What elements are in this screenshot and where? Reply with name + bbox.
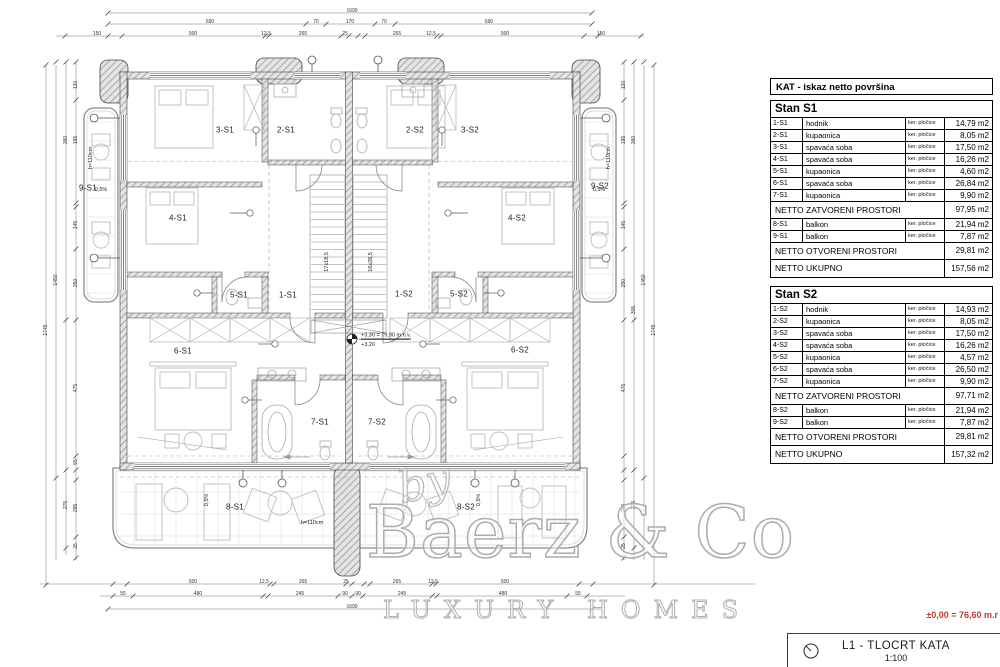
table-row: 3-S1spavaća sobaker. pločice17,50 m2 xyxy=(771,141,992,153)
apartment-name: Stan S2 xyxy=(771,287,992,303)
subtotal-area: 29,81 m2 xyxy=(944,243,992,259)
room-code-cell: 3-S2 xyxy=(771,328,802,339)
subtotal-row: NETTO ZATVORENI PROSTORI97,71 m2 xyxy=(771,387,992,404)
area-tables: Stan S11-S1hodnikker. pločice14,79 m22-S… xyxy=(770,100,993,464)
level-marker-icon xyxy=(347,334,409,344)
area-cell: 26,50 m2 xyxy=(944,364,992,375)
room-code-cell: 2-S2 xyxy=(771,316,802,327)
table-row: 1-S1hodnikker. pločice14,79 m2 xyxy=(771,117,992,129)
area-cell: 14,93 m2 xyxy=(944,304,992,315)
apartment-name: Stan S1 xyxy=(771,101,992,117)
finish-cell: ker. pločice xyxy=(905,190,944,201)
area-cell: 26,84 m2 xyxy=(944,178,992,189)
finish-cell: ker. pločice xyxy=(905,417,944,428)
area-cell: 14,79 m2 xyxy=(944,118,992,129)
table-row: 7-S2kupaonicaker. pločice9,90 m2 xyxy=(771,375,992,387)
room-name-cell: spavaća soba xyxy=(802,340,905,351)
room-code-cell: 3-S1 xyxy=(771,142,802,153)
room-code-cell: 1-S1 xyxy=(771,118,802,129)
watermark-brand: Baerz & Co xyxy=(366,496,795,568)
room-name-cell: kupaonica xyxy=(802,376,905,387)
subtotal-area: 157,32 m2 xyxy=(944,446,992,463)
room-name-cell: spavaća soba xyxy=(802,142,905,153)
table-row: 7-S1kupaonicaker. pločice9,90 m2 xyxy=(771,189,992,201)
room-name-cell: kupaonica xyxy=(802,316,905,327)
finish-cell: ker. pločice xyxy=(905,166,944,177)
room-code-cell: 4-S2 xyxy=(771,340,802,351)
balcony-9-S1 xyxy=(84,108,118,302)
finish-cell: ker. pločice xyxy=(905,364,944,375)
room-name-cell: kupaonica xyxy=(802,352,905,363)
room-code-cell: 4-S1 xyxy=(771,154,802,165)
area-cell: 8,05 m2 xyxy=(944,130,992,141)
subtotal-area: 29,81 m2 xyxy=(944,429,992,445)
table-row: 1-S2hodnikker. pločice14,93 m2 xyxy=(771,303,992,315)
area-cell: 9,90 m2 xyxy=(944,376,992,387)
table-row: 6-S2spavaća sobaker. pločice26,50 m2 xyxy=(771,363,992,375)
apartment-table: Stan S11-S1hodnikker. pločice14,79 m22-S… xyxy=(770,100,993,278)
drawing-title: L1 - TLOCRT KATA xyxy=(842,640,950,652)
finish-cell: ker. pločice xyxy=(905,178,944,189)
legend-header: KAT - iskaz netto površina xyxy=(770,78,993,95)
subtotal-area: 97,95 m2 xyxy=(944,202,992,218)
subtotal-area: 157,56 m2 xyxy=(944,260,992,277)
table-row: 4-S1spavaća sobaker. pločice16,26 m2 xyxy=(771,153,992,165)
room-code-cell: 7-S2 xyxy=(771,376,802,387)
subtotal-row: NETTO UKUPNO157,56 m2 xyxy=(771,259,992,277)
room-name-cell: spavaća soba xyxy=(802,154,905,165)
blueprint-canvas: 3-S12-S12-S23-S29-S19-S24-S14-S25-S11-S1… xyxy=(0,0,1000,667)
finish-cell: ker. pločice xyxy=(905,316,944,327)
subtotal-area: 97,71 m2 xyxy=(944,388,992,404)
subtotal-label: NETTO OTVORENI PROSTORI xyxy=(771,243,944,259)
table-row: 2-S2kupaonicaker. pločice8,05 m2 xyxy=(771,315,992,327)
room-code-cell: 5-S1 xyxy=(771,166,802,177)
room-name-cell: hodnik xyxy=(802,118,905,129)
finish-cell: ker. pločice xyxy=(905,405,944,416)
finish-cell: ker. pločice xyxy=(905,142,944,153)
area-cell: 4,57 m2 xyxy=(944,352,992,363)
apartment-table: Stan S21-S2hodnikker. pločice14,93 m22-S… xyxy=(770,286,993,464)
area-cell: 4,60 m2 xyxy=(944,166,992,177)
area-cell: 16,26 m2 xyxy=(944,154,992,165)
table-row: 8-S2balkonker. pločice21,94 m2 xyxy=(771,404,992,416)
exterior-walls xyxy=(120,72,580,470)
room-code-cell: 8-S1 xyxy=(771,219,802,230)
area-cell: 17,50 m2 xyxy=(944,328,992,339)
subtotal-label: NETTO ZATVORENI PROSTORI xyxy=(771,388,944,404)
table-row: 3-S2spavaća sobaker. pločice17,50 m2 xyxy=(771,327,992,339)
subtotal-row: NETTO OTVORENI PROSTORI29,81 m2 xyxy=(771,242,992,259)
room-code-cell: 1-S2 xyxy=(771,304,802,315)
room-name-cell: spavaća soba xyxy=(802,178,905,189)
subtotal-label: NETTO ZATVORENI PROSTORI xyxy=(771,202,944,218)
area-cell: 8,05 m2 xyxy=(944,316,992,327)
finish-cell: ker. pločice xyxy=(905,219,944,230)
room-name-cell: spavaća soba xyxy=(802,328,905,339)
room-name-cell: balkon xyxy=(802,405,905,416)
room-code-cell: 9-S2 xyxy=(771,417,802,428)
finish-cell: ker. pločice xyxy=(905,118,944,129)
level-note: ±0,00 = 76,60 m.r xyxy=(926,610,998,620)
room-name-cell: kupaonica xyxy=(802,166,905,177)
room-name-cell: spavaća soba xyxy=(802,364,905,375)
table-row: 9-S2balkonker. pločice7,87 m2 xyxy=(771,416,992,428)
subtotal-label: NETTO UKUPNO xyxy=(771,446,944,463)
watermark-tagline: LUXURY HOMES xyxy=(383,596,751,624)
table-row: 8-S1balkonker. pločice21,94 m2 xyxy=(771,218,992,230)
area-cell: 17,50 m2 xyxy=(944,142,992,153)
room-name-cell: kupaonica xyxy=(802,130,905,141)
room-name-cell: hodnik xyxy=(802,304,905,315)
table-row: 6-S1spavaća sobaker. pločice26,84 m2 xyxy=(771,177,992,189)
room-code-cell: 9-S1 xyxy=(771,231,802,242)
finish-cell: ker. pločice xyxy=(905,231,944,242)
table-row: 5-S1kupaonicaker. pločice4,60 m2 xyxy=(771,165,992,177)
drawing-scale: 1:100 xyxy=(842,653,950,663)
finish-cell: ker. pločice xyxy=(905,376,944,387)
room-code-cell: 7-S1 xyxy=(771,190,802,201)
room-name-cell: balkon xyxy=(802,219,905,230)
room-code-cell: 6-S2 xyxy=(771,364,802,375)
subtotal-label: NETTO UKUPNO xyxy=(771,260,944,277)
area-cell: 16,26 m2 xyxy=(944,340,992,351)
subtotal-label: NETTO OTVORENI PROSTORI xyxy=(771,429,944,445)
subtotal-row: NETTO ZATVORENI PROSTORI97,95 m2 xyxy=(771,201,992,218)
area-cell: 7,87 m2 xyxy=(944,231,992,242)
room-code-cell: 2-S1 xyxy=(771,130,802,141)
room-code-cell: 8-S2 xyxy=(771,405,802,416)
finish-cell: ker. pločice xyxy=(905,352,944,363)
subtotal-row: NETTO UKUPNO157,32 m2 xyxy=(771,445,992,463)
room-code-cell: 5-S2 xyxy=(771,352,802,363)
subtotal-row: NETTO OTVORENI PROSTORI29,81 m2 xyxy=(771,428,992,445)
finish-cell: ker. pločice xyxy=(905,154,944,165)
room-name-cell: kupaonica xyxy=(802,190,905,201)
finish-cell: ker. pločice xyxy=(905,304,944,315)
table-row: 4-S2spavaća sobaker. pločice16,26 m2 xyxy=(771,339,992,351)
room-name-cell: balkon xyxy=(802,231,905,242)
north-arrow-icon xyxy=(802,642,820,660)
room-name-cell: balkon xyxy=(802,417,905,428)
area-cell: 21,94 m2 xyxy=(944,219,992,230)
balcony-9-S2 xyxy=(582,108,616,302)
finish-cell: ker. pločice xyxy=(905,130,944,141)
finish-cell: ker. pločice xyxy=(905,340,944,351)
area-cell: 7,87 m2 xyxy=(944,417,992,428)
room-code-cell: 6-S1 xyxy=(771,178,802,189)
area-cell: 21,94 m2 xyxy=(944,405,992,416)
finish-cell: ker. pločice xyxy=(905,328,944,339)
table-row: 9-S1balkonker. pločice7,87 m2 xyxy=(771,230,992,242)
title-block: L1 - TLOCRT KATA 1:100 xyxy=(787,633,1000,667)
table-row: 5-S2kupaonicaker. pločice4,57 m2 xyxy=(771,351,992,363)
table-row: 2-S1kupaonicaker. pločice8,05 m2 xyxy=(771,129,992,141)
area-cell: 9,90 m2 xyxy=(944,190,992,201)
